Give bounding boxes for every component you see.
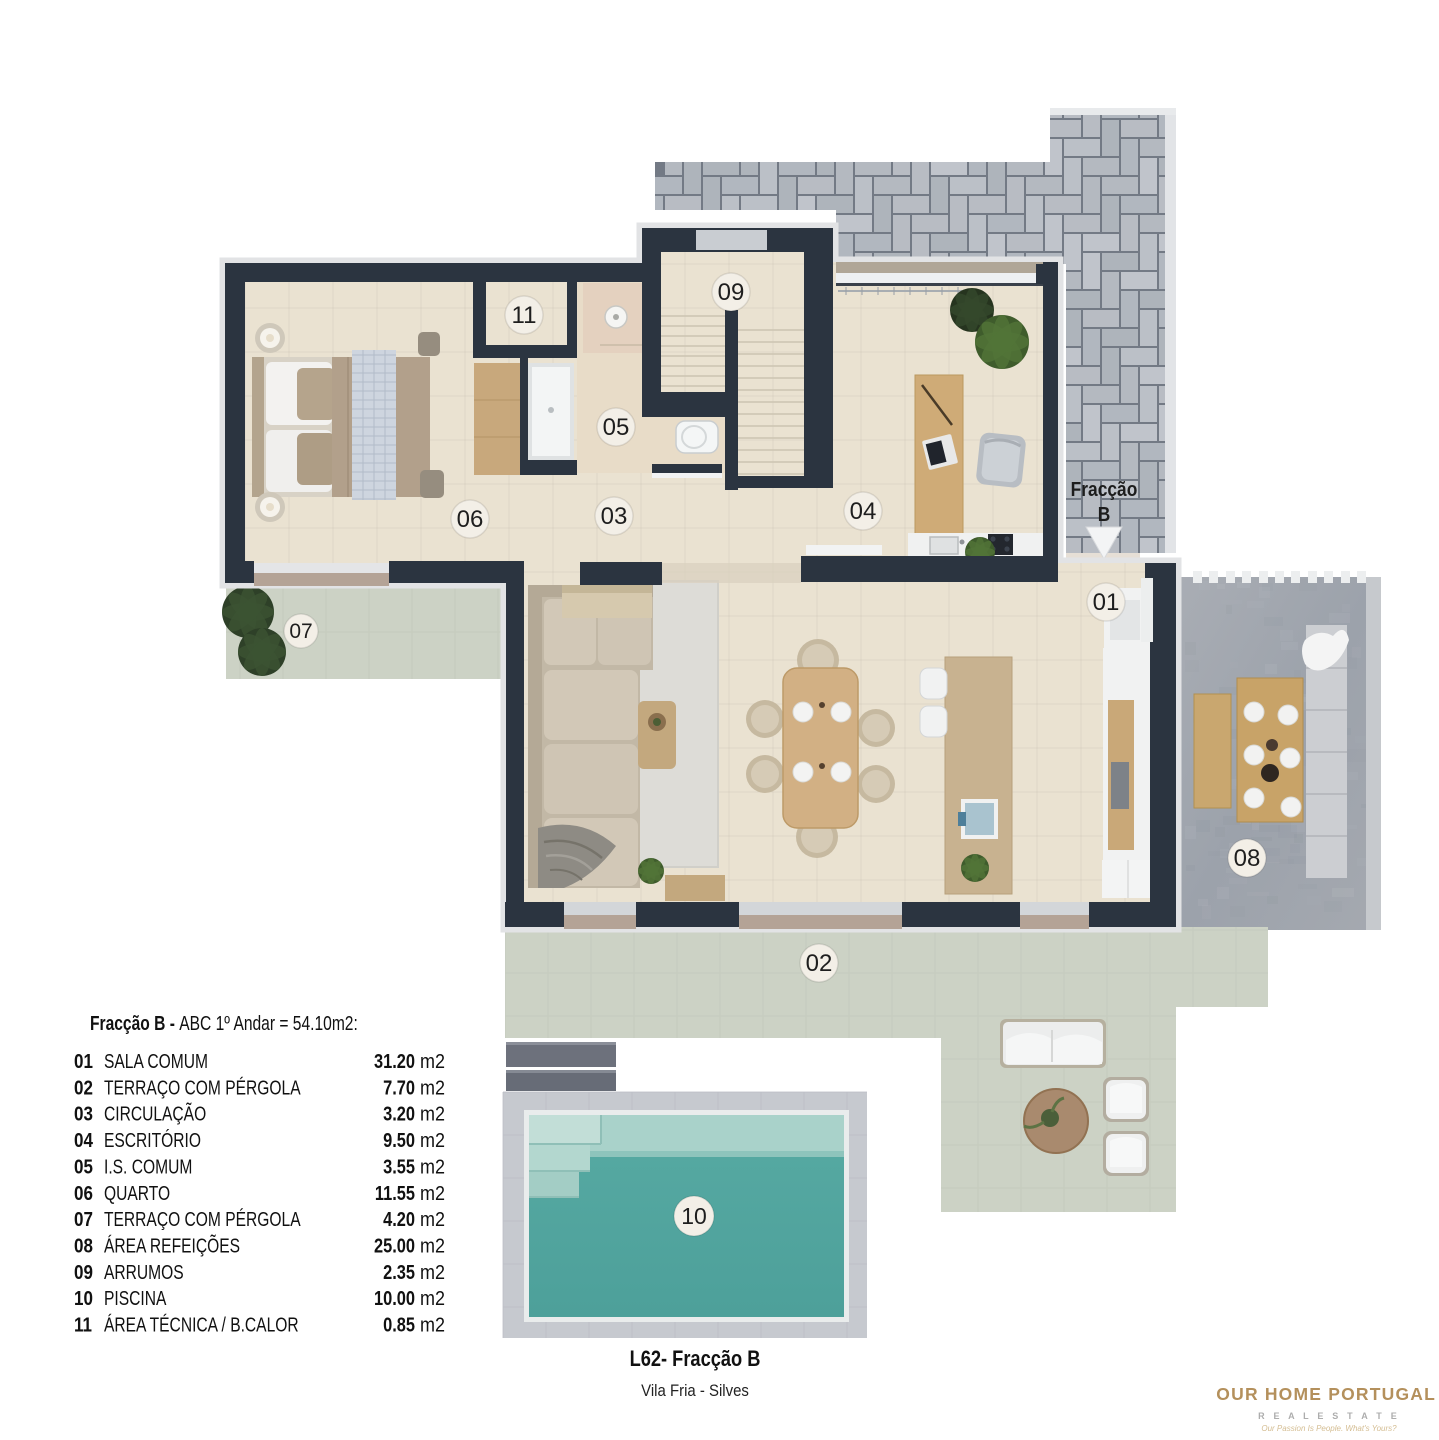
svg-text:Our Passion Is People. What's: Our Passion Is People. What's Yours? [1261,1424,1397,1433]
svg-text:07: 07 [74,1208,93,1231]
svg-text:9.50: 9.50 [383,1128,415,1151]
svg-text:06: 06 [457,506,484,533]
svg-text:ARRUMOS: ARRUMOS [104,1261,184,1283]
svg-text:02: 02 [74,1076,93,1099]
svg-text:ESCRITÓRIO: ESCRITÓRIO [104,1128,201,1151]
svg-text:L62- Fracção B: L62- Fracção B [630,1348,761,1372]
svg-text:Fracção B - ABC 1º Andar = 54.: Fracção B - ABC 1º Andar = 54.10m2: [90,1012,358,1034]
svg-text:TERRAÇO COM PÉRGOLA: TERRAÇO COM PÉRGOLA [104,1077,301,1099]
svg-text:0.85: 0.85 [383,1313,415,1336]
svg-text:10: 10 [74,1287,93,1310]
svg-text:07: 07 [289,620,312,643]
svg-text:OUR HOME PORTUGAL: OUR HOME PORTUGAL [1216,1384,1436,1404]
svg-text:m2: m2 [420,1236,445,1258]
svg-text:ÁREA REFEIÇÕES: ÁREA REFEIÇÕES [104,1233,240,1256]
svg-text:m2: m2 [420,1288,445,1310]
svg-text:08: 08 [74,1234,93,1257]
svg-text:R E A L E S T A T E: R E A L E S T A T E [1258,1411,1400,1421]
svg-text:10: 10 [681,1203,707,1229]
svg-text:PISCINA: PISCINA [104,1287,166,1309]
svg-text:QUARTO: QUARTO [104,1182,170,1204]
svg-text:31.20: 31.20 [374,1049,415,1072]
svg-text:05: 05 [603,414,630,441]
svg-text:03: 03 [74,1102,93,1125]
svg-text:m2: m2 [420,1157,445,1179]
svg-text:7.70: 7.70 [383,1076,415,1099]
svg-text:06: 06 [74,1181,93,1204]
svg-text:02: 02 [806,950,833,977]
svg-text:m2: m2 [420,1262,445,1284]
svg-text:ÁREA TÉCNICA / B.CALOR: ÁREA TÉCNICA / B.CALOR [104,1314,299,1336]
svg-text:Fracção: Fracção [1071,478,1138,500]
svg-text:4.20: 4.20 [383,1208,415,1231]
svg-text:11: 11 [512,302,537,329]
svg-text:Vila Fria - Silves: Vila Fria - Silves [641,1382,749,1400]
svg-text:m2: m2 [420,1209,445,1231]
svg-text:25.00: 25.00 [374,1234,415,1257]
svg-text:SALA COMUM: SALA COMUM [104,1050,208,1072]
svg-text:10.00: 10.00 [374,1287,415,1310]
svg-text:01: 01 [74,1050,93,1073]
svg-text:3.20: 3.20 [383,1102,415,1125]
svg-text:3.55: 3.55 [383,1155,415,1178]
svg-text:m2: m2 [420,1130,445,1152]
svg-text:11: 11 [74,1313,92,1336]
svg-text:2.35: 2.35 [383,1260,415,1283]
svg-text:05: 05 [74,1155,93,1178]
svg-text:04: 04 [74,1129,94,1152]
svg-text:m2: m2 [420,1051,445,1073]
svg-text:m2: m2 [420,1315,445,1337]
svg-text:08: 08 [1234,845,1261,872]
svg-text:m2: m2 [420,1104,445,1126]
svg-text:I.S. COMUM: I.S. COMUM [104,1156,192,1178]
svg-text:m2: m2 [420,1183,445,1205]
svg-text:TERRAÇO COM PÉRGOLA: TERRAÇO COM PÉRGOLA [104,1208,301,1230]
svg-text:03: 03 [601,503,628,530]
svg-text:09: 09 [74,1260,93,1283]
svg-text:B: B [1098,503,1111,525]
svg-text:04: 04 [850,498,877,525]
svg-text:09: 09 [718,279,745,306]
svg-text:CIRCULAÇÃO: CIRCULAÇÃO [104,1102,206,1125]
svg-text:01: 01 [1093,589,1120,616]
svg-text:m2: m2 [420,1078,445,1100]
svg-text:11.55: 11.55 [375,1181,415,1204]
